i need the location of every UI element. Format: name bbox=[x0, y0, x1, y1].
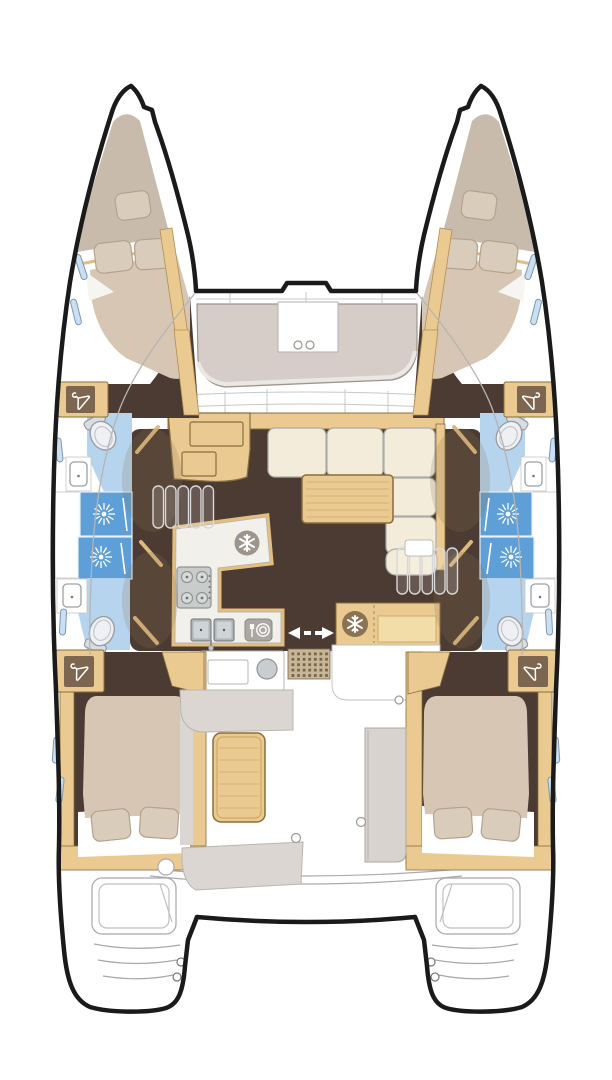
transom-fitting bbox=[431, 973, 439, 981]
deck-fitting bbox=[292, 834, 301, 843]
dining-table bbox=[302, 475, 393, 523]
double-bed bbox=[83, 696, 189, 818]
port-transom-seat bbox=[92, 878, 176, 934]
shower-stall bbox=[78, 537, 132, 579]
cockpit-wet-bar bbox=[200, 651, 284, 690]
sofa-cushion bbox=[327, 428, 383, 477]
cooler-cabinet bbox=[336, 603, 440, 645]
cockpit-bench bbox=[180, 690, 293, 732]
pillow bbox=[91, 808, 132, 842]
swim-step bbox=[439, 975, 509, 979]
refrigerator bbox=[235, 531, 260, 556]
wardrobe bbox=[56, 650, 104, 692]
stair-tread bbox=[447, 548, 458, 594]
cooler bbox=[342, 611, 368, 637]
forward-cockpit-seat bbox=[196, 292, 417, 387]
port-stairs bbox=[153, 486, 214, 528]
washbasin bbox=[57, 579, 87, 613]
stair-tread bbox=[166, 486, 177, 528]
stair-tread bbox=[178, 486, 189, 528]
sofa-cushion bbox=[268, 428, 326, 477]
wardrobe bbox=[58, 382, 108, 417]
deck-grate bbox=[288, 649, 330, 679]
pillow bbox=[139, 807, 179, 840]
cockpit-aft-bench bbox=[182, 842, 303, 890]
dishwasher bbox=[245, 619, 272, 641]
companionway-step bbox=[405, 540, 433, 556]
cockpit-aft-edge bbox=[197, 917, 415, 922]
bridgedeck-front bbox=[196, 283, 416, 291]
stove bbox=[177, 567, 211, 608]
stair-tread bbox=[203, 486, 214, 528]
hull-window bbox=[70, 299, 82, 326]
pillow bbox=[93, 240, 133, 274]
stair-tread bbox=[435, 548, 446, 594]
starboard-transom-seat bbox=[436, 878, 520, 934]
hull-window bbox=[59, 609, 66, 635]
swim-step bbox=[432, 944, 518, 948]
swim-step bbox=[103, 975, 173, 979]
deck-fitting bbox=[395, 696, 403, 704]
round-sink bbox=[257, 659, 277, 679]
transom-fitting bbox=[173, 973, 181, 981]
door-light-shade bbox=[122, 552, 178, 648]
aft-module bbox=[365, 728, 406, 862]
aft-head bbox=[57, 579, 130, 655]
forepeak-pillow bbox=[114, 190, 151, 221]
washbasin bbox=[66, 457, 91, 491]
deck-fitting bbox=[158, 859, 174, 875]
swim-step bbox=[435, 960, 514, 964]
forward-head bbox=[55, 412, 132, 492]
swim-step bbox=[94, 944, 180, 948]
catamaran-floor-plan bbox=[0, 0, 612, 1080]
sofa-cushion bbox=[384, 428, 435, 477]
stair-tread bbox=[153, 486, 164, 528]
stair-tread bbox=[191, 486, 202, 528]
cockpit-table bbox=[213, 733, 265, 822]
cup-holder bbox=[306, 341, 314, 349]
cup-holder bbox=[294, 341, 302, 349]
deck-fitting bbox=[357, 818, 366, 827]
swim-step bbox=[98, 960, 177, 964]
floor-plan-canvas bbox=[0, 0, 612, 1080]
transoms bbox=[92, 878, 520, 981]
